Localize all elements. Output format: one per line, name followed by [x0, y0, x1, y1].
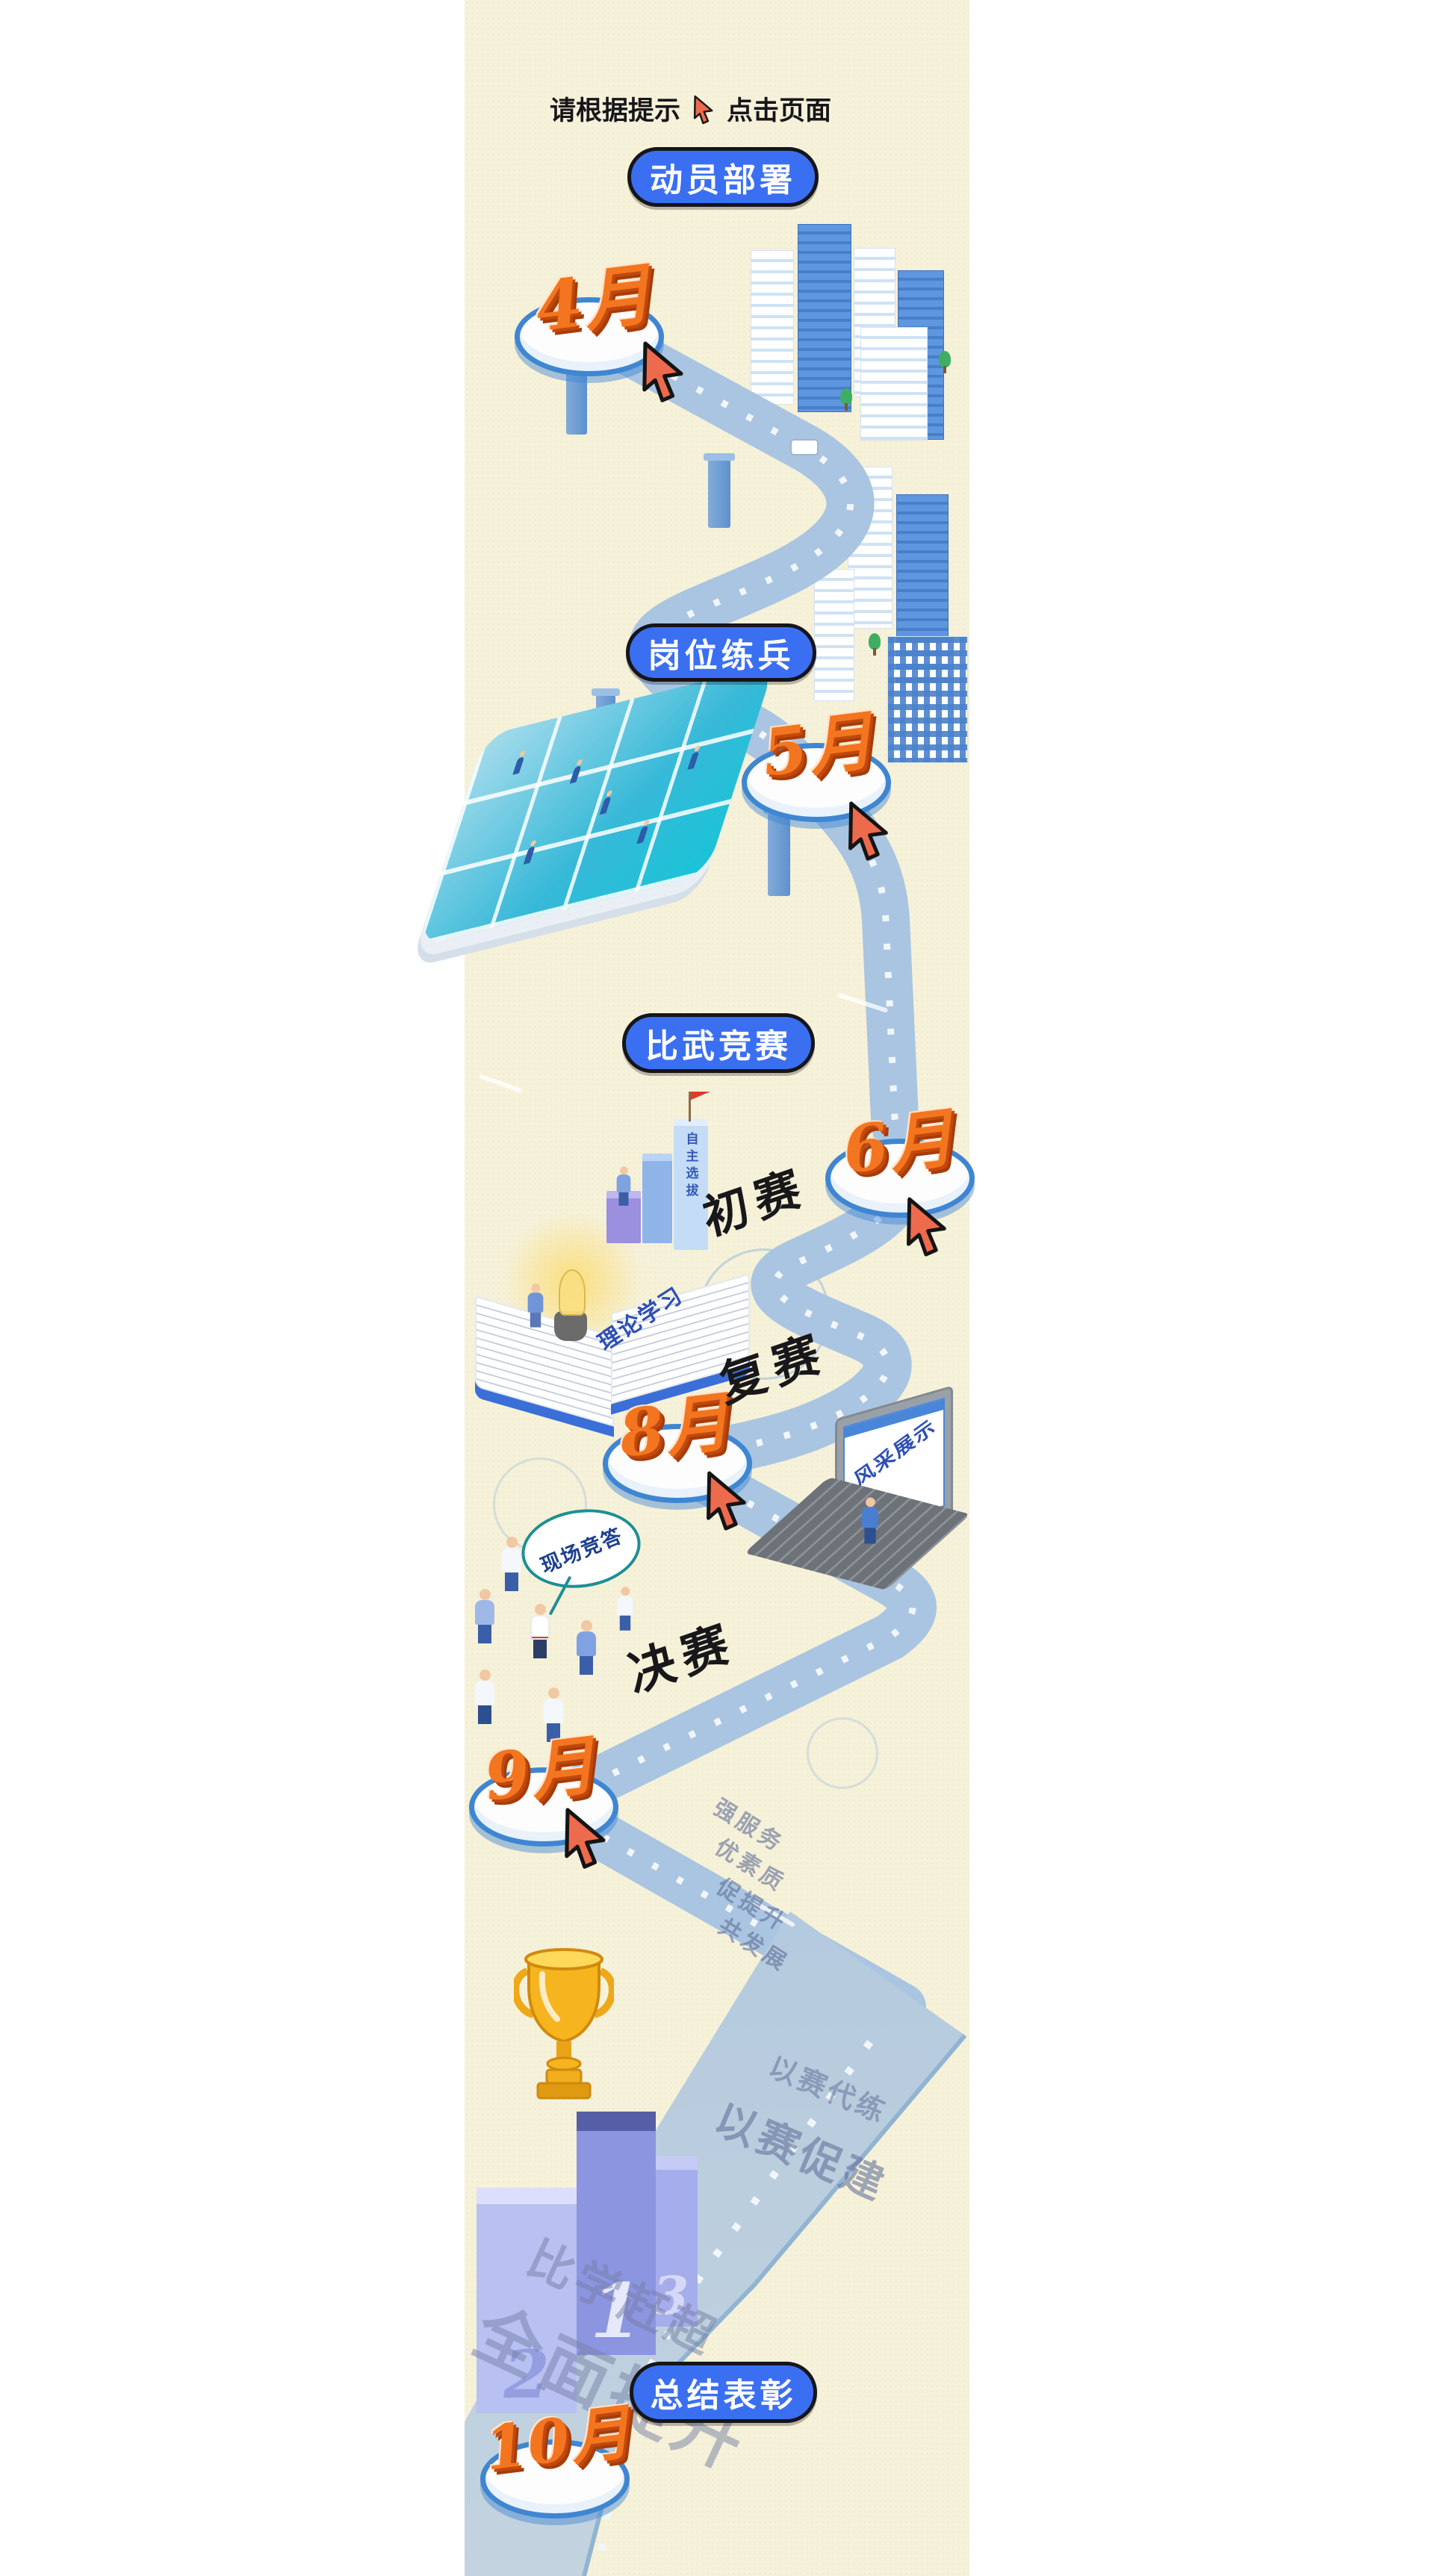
instruction-bar: 请根据提示 点击页面 [550, 90, 831, 128]
person-figure [524, 846, 536, 865]
trophy-icon [514, 1941, 614, 2113]
milestone-month: 8月 [613, 1369, 736, 1475]
milestone-month: 6月 [837, 1085, 960, 1191]
cursor-icon [636, 337, 690, 403]
round-note: 现场竞答 [536, 1519, 627, 1578]
person-figure [860, 1497, 881, 1543]
cursor-icon [559, 1803, 612, 1870]
person-figure [636, 826, 648, 844]
milestone-month: 5月 [757, 688, 879, 794]
person-figure [525, 1284, 545, 1327]
stage-label: 岗位练兵 [648, 629, 795, 676]
car-icon [790, 439, 819, 455]
person-figure [472, 1589, 497, 1643]
flag-icon [691, 1092, 710, 1107]
person-figure [574, 1620, 599, 1675]
person-figure [600, 797, 612, 815]
stage-button-mobilize[interactable]: 动员部署 [627, 147, 819, 207]
person-figure [499, 1537, 524, 1591]
person-figure [687, 751, 699, 770]
milestone-month: 4月 [530, 240, 657, 350]
instruction-suffix: 点击页面 [727, 90, 831, 128]
stage-label: 动员部署 [650, 153, 796, 201]
stage-button-commend[interactable]: 总结表彰 [630, 2362, 817, 2423]
instruction-prefix: 请根据提示 [550, 90, 680, 128]
stage-button-drill[interactable]: 岗位练兵 [626, 623, 816, 682]
person-figure [512, 756, 524, 775]
poster-canvas: 请根据提示 点击页面 动员部署 岗位练兵 比武竞赛 总结表彰 4月 5月 6月 … [0, 0, 1434, 2576]
stage-label: 比武竞赛 [645, 1019, 792, 1067]
bulb-icon [554, 1311, 587, 1341]
person-figure [570, 765, 582, 784]
stage-label: 总结表彰 [651, 2368, 797, 2416]
cursor-icon [842, 797, 895, 862]
bulb-glass [559, 1269, 586, 1316]
person-figure [615, 1587, 635, 1630]
person-figure [615, 1166, 633, 1206]
person-figure [472, 1670, 497, 1724]
stage-button-contest[interactable]: 比武竞赛 [622, 1013, 815, 1073]
milestone-month: 10月 [479, 2383, 636, 2487]
rank-bar-mid [642, 1154, 672, 1243]
cursor-icon [901, 1193, 953, 1257]
cursor-icon [701, 1467, 753, 1531]
cursor-icon [691, 93, 716, 125]
